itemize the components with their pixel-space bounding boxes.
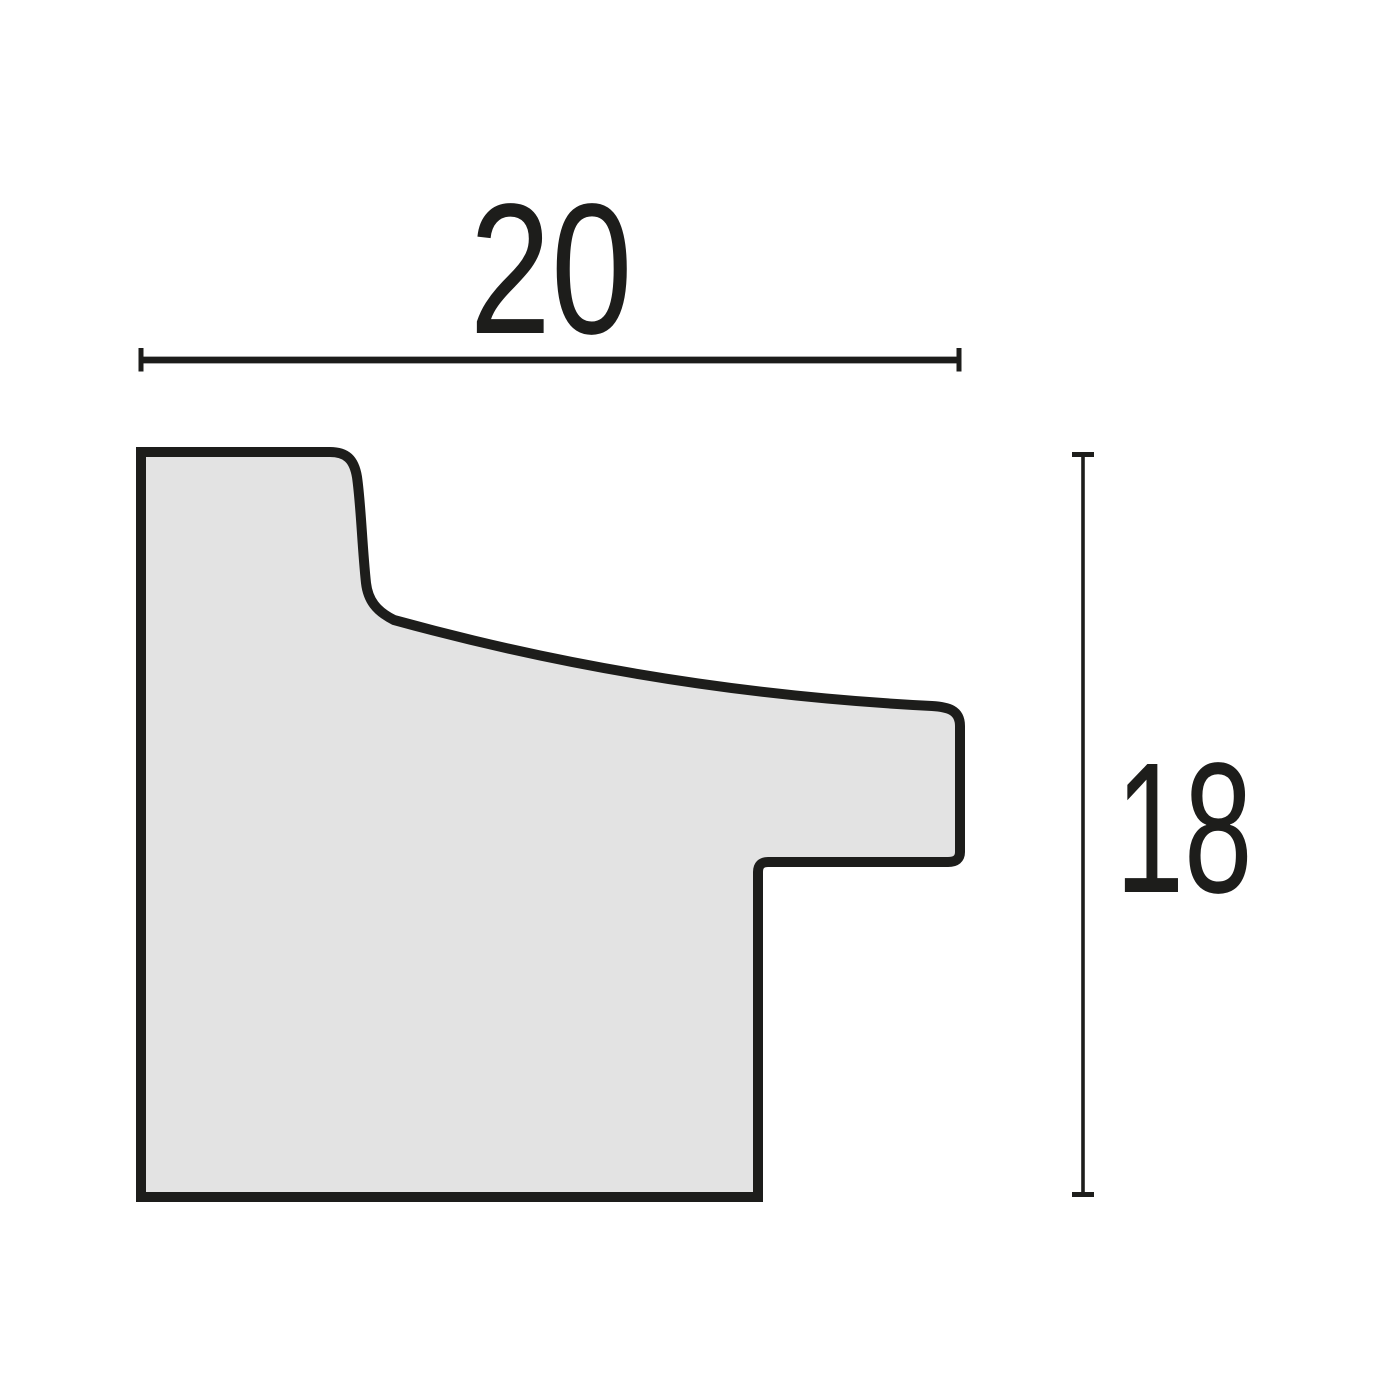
width-dimension-label: 20	[470, 166, 633, 373]
profile-shape	[141, 452, 960, 1197]
profile-diagram: 20 18	[0, 0, 1400, 1400]
height-dimension: 18	[1072, 454, 1253, 1195]
diagram-canvas: 20 18	[0, 0, 1400, 1400]
width-dimension: 20	[141, 166, 959, 373]
height-dimension-label: 18	[1116, 725, 1253, 932]
